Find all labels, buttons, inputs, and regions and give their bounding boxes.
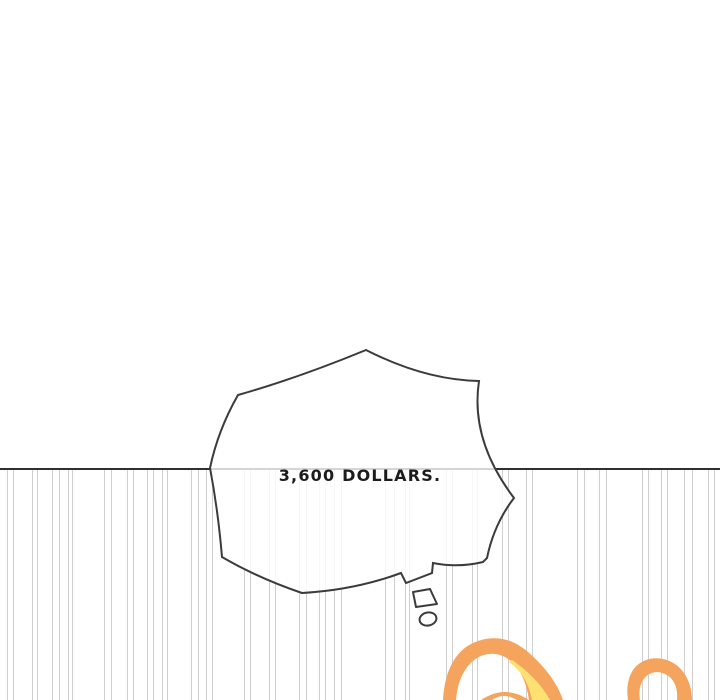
speed-line (526, 470, 533, 700)
speed-line (191, 470, 199, 700)
speed-line (577, 470, 585, 700)
speed-line (599, 470, 607, 700)
comic-panel: 3,600 DOLLARS. (0, 0, 720, 700)
speed-line (32, 470, 38, 700)
speed-line (206, 470, 213, 700)
page-gutter (0, 0, 720, 468)
thought-bubble-text: 3,600 DOLLARS. (210, 466, 510, 485)
speed-line (269, 470, 276, 700)
speed-line (661, 470, 668, 700)
speed-line (334, 470, 342, 700)
speed-lines (0, 470, 720, 700)
speed-line (684, 470, 693, 700)
speed-line (162, 470, 168, 700)
speed-line (244, 470, 251, 700)
speed-line (446, 470, 453, 700)
speed-line (52, 470, 60, 700)
speed-line (127, 470, 134, 700)
speed-line (502, 470, 509, 700)
speed-line (104, 470, 112, 700)
speed-line (7, 470, 14, 700)
speed-line (405, 470, 410, 700)
speed-line (708, 470, 715, 700)
speed-line (319, 470, 326, 700)
speed-line (147, 470, 154, 700)
speed-line (385, 470, 395, 700)
speed-line (299, 470, 307, 700)
speed-line (642, 470, 649, 700)
speed-line (472, 470, 478, 700)
speed-line (68, 470, 73, 700)
